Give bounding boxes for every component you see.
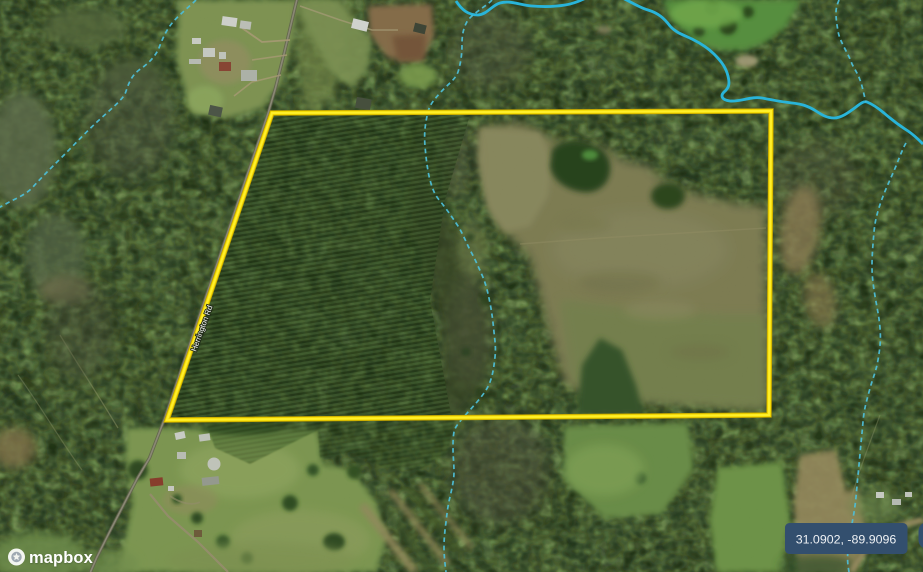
svg-text:31.0902, -89.9096: 31.0902, -89.9096 — [796, 533, 897, 547]
svg-text:mapbox: mapbox — [29, 549, 94, 567]
